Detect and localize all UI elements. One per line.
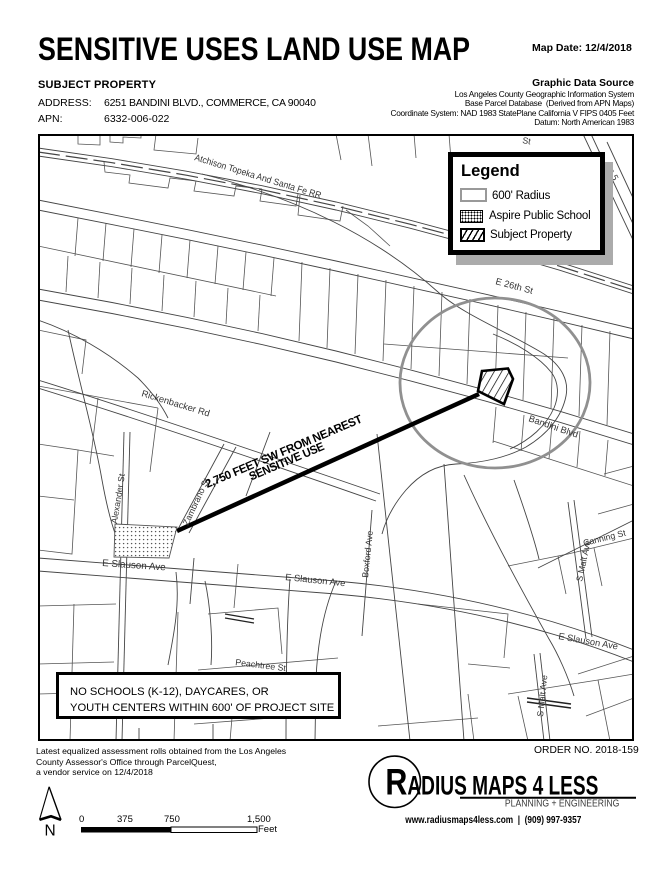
svg-text:E Slauson Ave: E Slauson Ave xyxy=(102,558,167,573)
svg-text:2,750 FEET SW FROM NEAREST: 2,750 FEET SW FROM NEAREST xyxy=(203,411,365,490)
svg-text:750: 750 xyxy=(164,814,180,825)
svg-text:Peachtree St: Peachtree St xyxy=(235,657,287,673)
svg-text:R: R xyxy=(385,762,407,803)
svg-text:Boxford Ave: Boxford Ave xyxy=(360,530,375,578)
svg-text:E Slauson Ave: E Slauson Ave xyxy=(558,631,619,651)
svg-text:0: 0 xyxy=(79,814,84,825)
svg-text:Rickenbacker Rd: Rickenbacker Rd xyxy=(140,388,211,418)
svg-text:e 5: e 5 xyxy=(606,166,620,181)
svg-text:E Slauson Ave: E Slauson Ave xyxy=(285,572,346,588)
svg-text:ADIUS MAPS 4 LESS: ADIUS MAPS 4 LESS xyxy=(407,771,598,801)
svg-text:Bandini Blvd: Bandini Blvd xyxy=(527,413,579,439)
svg-text:Feet: Feet xyxy=(258,824,277,835)
svg-text:www.radiusmaps4less.com | (9: www.radiusmaps4less.com | (909) 997-9357 xyxy=(404,815,581,826)
svg-text:N: N xyxy=(45,823,56,840)
svg-text:375: 375 xyxy=(117,814,133,825)
svg-text:Alexander St: Alexander St xyxy=(109,472,127,524)
svg-text:PLANNING + ENGINEERING: PLANNING + ENGINEERING xyxy=(505,799,620,810)
svg-text:St: St xyxy=(522,135,532,146)
svg-text:E 26th St: E 26th St xyxy=(494,276,534,296)
